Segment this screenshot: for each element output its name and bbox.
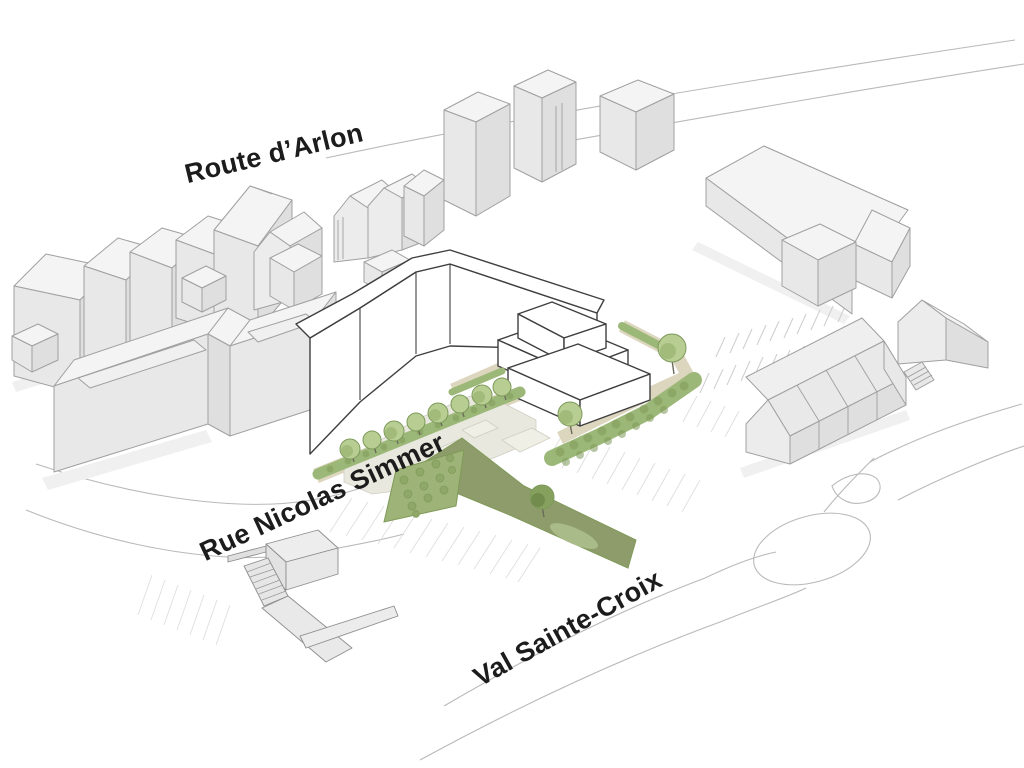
existing-building — [444, 92, 510, 216]
axonometric-site-plan: Route d’Arlon Rue Nicolas Simmer Val Sai… — [0, 0, 1024, 768]
existing-building — [514, 70, 576, 182]
existing-building — [404, 170, 444, 246]
site-plan-page: Route d’Arlon Rue Nicolas Simmer Val Sai… — [0, 0, 1024, 768]
